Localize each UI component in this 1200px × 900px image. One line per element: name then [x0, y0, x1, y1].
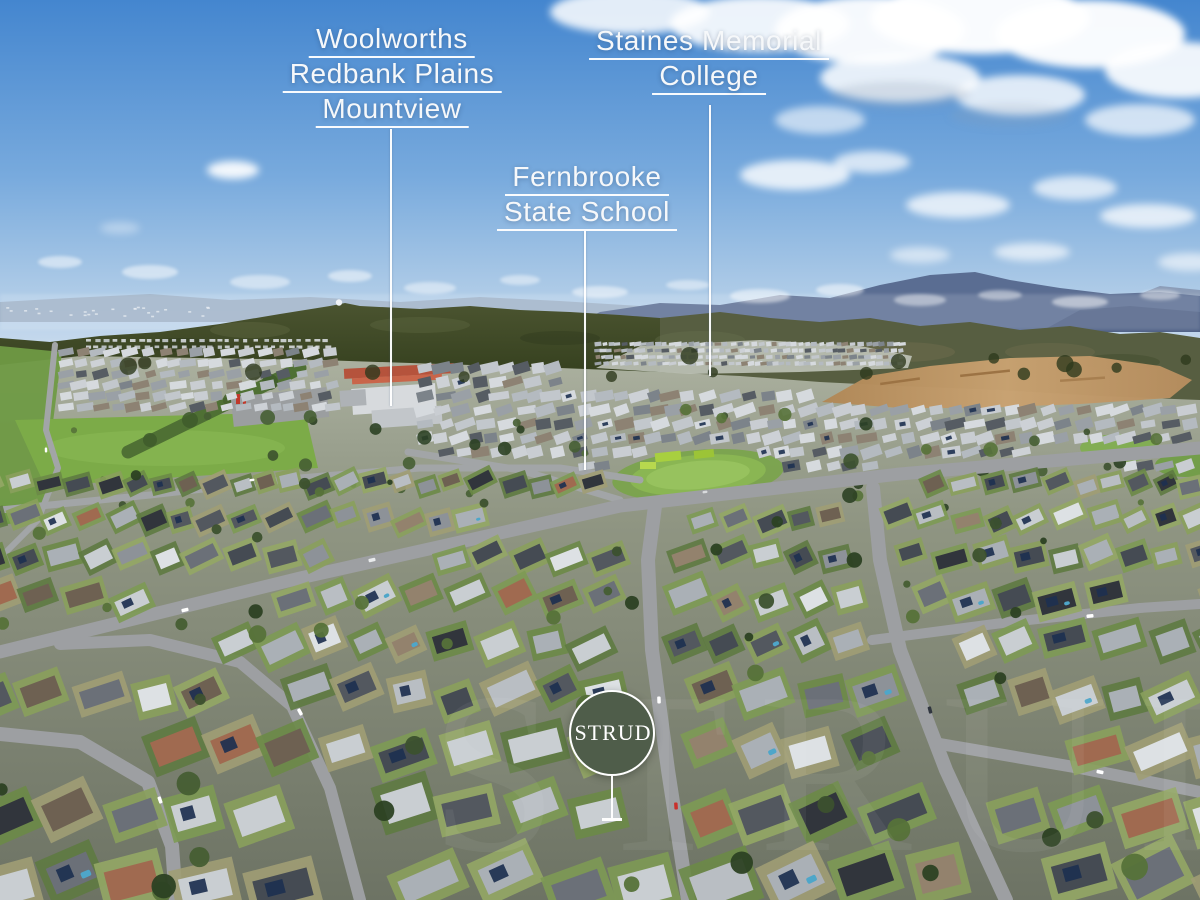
rooftop	[620, 355, 626, 360]
rooftop	[626, 355, 634, 360]
tree	[480, 499, 489, 508]
cloud	[207, 161, 259, 179]
rooftop	[603, 361, 609, 366]
rooftop	[792, 348, 798, 352]
tree	[1181, 355, 1192, 366]
rooftop	[305, 339, 310, 342]
rooftop	[225, 346, 230, 349]
rooftop	[810, 361, 816, 365]
tree	[299, 478, 310, 489]
rooftop	[225, 339, 229, 342]
rooftop	[130, 339, 136, 342]
rooftop	[811, 342, 817, 346]
rooftop	[243, 339, 247, 342]
tree	[546, 610, 560, 624]
rooftop	[657, 355, 663, 359]
rooftop	[255, 346, 261, 349]
label-line: Redbank Plains	[283, 60, 502, 93]
rooftop	[750, 355, 755, 359]
rooftop	[280, 358, 293, 368]
rooftop	[263, 346, 268, 349]
rooftop	[113, 339, 118, 342]
rooftop	[837, 342, 842, 346]
rooftop	[795, 361, 800, 366]
tree	[716, 413, 727, 424]
tree	[983, 442, 998, 457]
rooftop	[786, 362, 791, 366]
rooftop	[76, 370, 87, 378]
tree	[988, 353, 999, 364]
cloud-row	[404, 282, 456, 294]
tree	[175, 618, 187, 630]
tree	[921, 444, 932, 455]
leader-line-staines	[709, 105, 711, 376]
tree	[681, 347, 699, 365]
tree	[1042, 828, 1061, 847]
strud-badge-label: STRUD	[572, 720, 651, 746]
rooftop	[614, 355, 620, 358]
rooftop	[819, 348, 826, 352]
tree	[260, 410, 275, 425]
rooftop	[614, 342, 621, 346]
rooftop	[876, 361, 884, 366]
tree	[194, 694, 205, 705]
rooftop	[761, 390, 776, 401]
tree	[177, 772, 201, 796]
rooftop	[197, 359, 208, 368]
rooftop	[210, 391, 222, 401]
cloud-row	[328, 270, 372, 282]
tree	[189, 847, 209, 867]
tree	[1169, 474, 1174, 479]
tree	[1112, 363, 1122, 373]
tree	[1138, 499, 1144, 505]
tree	[1010, 607, 1021, 618]
rooftop	[646, 342, 654, 347]
rooftop	[323, 347, 337, 357]
rooftop	[887, 342, 894, 347]
rooftop	[109, 346, 113, 349]
rooftop	[729, 362, 735, 366]
rooftop	[535, 418, 551, 430]
rooftop	[669, 355, 675, 359]
cloud	[950, 103, 1070, 127]
cloud	[1085, 104, 1195, 136]
tree	[990, 517, 1002, 529]
tree	[860, 367, 873, 380]
rooftop	[854, 348, 860, 352]
rooftop	[93, 346, 98, 349]
rooftop	[728, 355, 735, 358]
car	[1086, 614, 1093, 618]
cloud	[100, 222, 140, 234]
tree	[994, 672, 1006, 684]
tree	[33, 527, 46, 540]
cloud-row	[122, 265, 178, 279]
tree	[843, 453, 858, 468]
tree	[252, 532, 263, 543]
tree	[1086, 811, 1103, 828]
rooftop	[833, 361, 840, 365]
observatory-dome	[336, 299, 342, 305]
rooftop	[677, 348, 682, 353]
rooftop	[766, 342, 771, 347]
cloud	[1033, 176, 1117, 200]
tree	[249, 625, 267, 643]
rooftop	[271, 346, 275, 349]
rooftop	[805, 348, 812, 352]
rooftop	[484, 432, 498, 443]
tree	[680, 404, 692, 416]
rooftop	[218, 346, 222, 349]
rooftop	[713, 348, 721, 352]
label-fernbrooke-state-school: Fernbrooke State School	[497, 163, 677, 233]
rooftop	[234, 339, 239, 342]
tree	[1018, 368, 1030, 380]
rooftop	[891, 348, 898, 352]
tree	[459, 371, 470, 382]
rooftop	[745, 349, 750, 353]
rooftop	[641, 361, 647, 365]
cloud	[775, 106, 865, 134]
rooftop	[155, 346, 160, 349]
tree	[516, 425, 524, 433]
rooftop	[595, 355, 600, 360]
rooftop	[833, 354, 841, 359]
strud-location-badge: STRUD	[569, 690, 655, 776]
tree	[405, 736, 424, 755]
rooftop	[104, 339, 110, 342]
rooftop	[824, 418, 838, 430]
rooftop	[735, 362, 741, 366]
tree	[625, 596, 639, 610]
tree	[370, 423, 382, 435]
tree	[906, 610, 920, 624]
rooftop	[713, 362, 721, 366]
rooftop	[876, 355, 882, 359]
rooftop	[725, 348, 730, 352]
cloud	[994, 243, 1070, 261]
tree	[759, 593, 775, 609]
rooftop	[790, 342, 796, 347]
cloud-row	[230, 275, 290, 289]
rooftop	[857, 342, 864, 346]
tree	[355, 596, 369, 610]
tree	[891, 354, 906, 369]
tree	[498, 442, 512, 456]
rooftop	[633, 361, 638, 365]
rooftop	[842, 355, 848, 359]
badge-pointer-stem	[611, 776, 613, 820]
tree	[268, 450, 279, 461]
rooftop	[273, 339, 279, 342]
tree	[842, 488, 857, 503]
field	[182, 412, 198, 428]
rooftop	[86, 339, 91, 342]
rooftop	[212, 381, 223, 390]
rooftop	[627, 348, 633, 352]
rooftop	[288, 339, 292, 342]
rooftop	[719, 348, 724, 352]
school-building	[640, 462, 656, 469]
rooftop	[898, 348, 904, 353]
tree	[859, 417, 872, 430]
tree	[71, 427, 77, 433]
rooftop	[883, 355, 888, 359]
rooftop	[181, 339, 186, 342]
rooftop	[811, 348, 816, 353]
cloud-row	[500, 275, 540, 285]
rooftop	[737, 342, 743, 346]
rooftop	[751, 342, 757, 347]
cloud	[834, 151, 910, 173]
label-line: Mountview	[315, 95, 468, 128]
rooftop	[757, 355, 765, 360]
rooftop	[599, 349, 606, 353]
rooftop	[740, 355, 748, 359]
rooftop	[763, 348, 768, 352]
cloud	[830, 81, 970, 109]
rooftop	[662, 342, 667, 346]
rooftop	[766, 355, 773, 359]
aerial-photograph: STRUD Woolworths Redbank Plains Mountvie…	[0, 0, 1200, 900]
tree	[204, 412, 212, 420]
rooftop	[594, 341, 601, 346]
tree	[299, 458, 312, 471]
cloud	[906, 192, 1010, 218]
tree	[922, 865, 938, 881]
tree	[710, 544, 722, 556]
leader-line-woolworths	[390, 129, 392, 406]
rooftop	[821, 355, 826, 359]
rooftop	[884, 348, 889, 353]
rooftop	[121, 339, 126, 342]
rooftop	[772, 342, 777, 347]
rooftop	[162, 339, 168, 342]
car	[674, 802, 678, 809]
rooftop	[296, 339, 300, 342]
rooftop	[172, 346, 177, 349]
forest	[210, 322, 290, 338]
tree	[1083, 429, 1090, 436]
rooftop	[322, 339, 327, 342]
rooftop	[786, 342, 792, 347]
rooftop	[649, 355, 656, 359]
tree	[1103, 463, 1111, 471]
rooftop	[826, 348, 834, 352]
rooftop	[805, 342, 810, 346]
rooftop	[841, 361, 846, 365]
tree	[778, 408, 791, 421]
rooftop	[254, 339, 258, 342]
tree	[469, 439, 480, 450]
tree	[365, 365, 380, 380]
tree	[1066, 362, 1082, 378]
tree	[212, 524, 222, 534]
rooftop	[826, 361, 834, 366]
rooftop	[661, 348, 669, 352]
rooftop	[852, 361, 859, 365]
cloud	[1100, 204, 1196, 228]
label-line: Woolworths	[309, 25, 475, 58]
rooftop	[472, 376, 488, 389]
tree	[1029, 435, 1040, 446]
rooftop	[721, 361, 727, 366]
tree	[606, 371, 617, 382]
tree	[245, 363, 262, 380]
rooftop	[884, 362, 890, 366]
tree	[102, 603, 111, 612]
rooftop	[819, 362, 824, 366]
tree	[887, 818, 910, 841]
rooftop	[825, 355, 832, 359]
car	[657, 696, 661, 703]
rooftop	[787, 355, 795, 359]
rooftop	[772, 361, 779, 366]
cloud	[890, 247, 950, 263]
rooftop	[531, 362, 545, 374]
forest	[520, 331, 600, 345]
rooftop	[147, 339, 152, 342]
rooftop	[622, 342, 628, 346]
tree	[1040, 538, 1047, 545]
rooftop	[281, 339, 287, 342]
rooftop	[606, 349, 611, 353]
tree	[862, 751, 876, 765]
tree	[403, 457, 416, 470]
forest	[370, 317, 470, 333]
tree	[441, 638, 452, 649]
rooftop	[609, 342, 615, 346]
tree	[972, 548, 986, 562]
label-line: Staines Memorial	[589, 27, 829, 60]
rooftop	[199, 339, 204, 342]
tree	[847, 552, 862, 567]
tree	[138, 356, 151, 369]
tree	[315, 487, 325, 497]
rooftop	[190, 339, 195, 342]
rooftop	[314, 339, 320, 342]
rooftop	[798, 342, 803, 346]
tree	[185, 498, 194, 507]
rooftop	[799, 348, 804, 352]
cloud	[740, 160, 850, 190]
rooftop	[234, 346, 239, 349]
label-line: State School	[497, 198, 677, 231]
rooftop	[95, 339, 100, 342]
label-line: Fernbrooke	[505, 163, 668, 196]
tree	[387, 479, 393, 485]
tree	[745, 633, 754, 642]
tree	[747, 665, 764, 682]
tree	[817, 796, 834, 813]
tree	[903, 580, 910, 587]
rooftop	[680, 390, 695, 402]
rooftop	[605, 355, 613, 360]
rooftop	[172, 339, 176, 342]
shopping-centre	[339, 389, 366, 407]
leader-line-fernbrooke	[584, 231, 586, 470]
rooftop	[870, 355, 876, 359]
tree	[771, 516, 782, 527]
field	[143, 433, 157, 447]
rooftop	[775, 355, 780, 360]
tree	[248, 604, 262, 618]
rooftop	[869, 349, 875, 353]
rooftop	[164, 346, 168, 349]
rooftop	[139, 339, 145, 342]
rooftop	[804, 355, 810, 359]
rooftop	[217, 339, 222, 342]
rooftop	[209, 339, 215, 342]
rooftop	[833, 348, 838, 352]
rooftop	[655, 349, 662, 353]
tree	[120, 357, 137, 374]
tree	[731, 851, 753, 873]
tree	[603, 587, 612, 596]
label-line: College	[652, 62, 765, 95]
tree	[374, 801, 394, 821]
label-staines-memorial-college: Staines Memorial College	[589, 27, 829, 97]
rooftop	[289, 346, 295, 349]
rooftop	[655, 342, 662, 347]
rooftop	[714, 342, 721, 346]
cloud-row	[666, 280, 710, 290]
cloud-row	[38, 256, 82, 268]
tree	[624, 876, 640, 892]
car	[45, 448, 48, 453]
tree	[151, 874, 175, 898]
tree	[612, 546, 622, 556]
rooftop	[264, 339, 269, 342]
tree	[131, 470, 141, 480]
badge-pointer-foot	[602, 818, 622, 821]
rooftop	[155, 339, 160, 342]
rooftop	[697, 348, 704, 353]
tree	[569, 441, 581, 453]
rooftop	[860, 349, 867, 353]
label-woolworths-redbank-plains-mountview: Woolworths Redbank Plains Mountview	[283, 25, 502, 130]
rooftop	[850, 342, 856, 345]
tree	[304, 410, 317, 423]
tree	[1121, 854, 1148, 881]
rooftop	[675, 341, 682, 346]
rooftop	[634, 348, 639, 353]
rooftop	[838, 348, 846, 352]
rooftop	[698, 355, 703, 359]
tree	[1150, 433, 1162, 445]
tree	[417, 430, 431, 444]
tree	[314, 623, 329, 638]
